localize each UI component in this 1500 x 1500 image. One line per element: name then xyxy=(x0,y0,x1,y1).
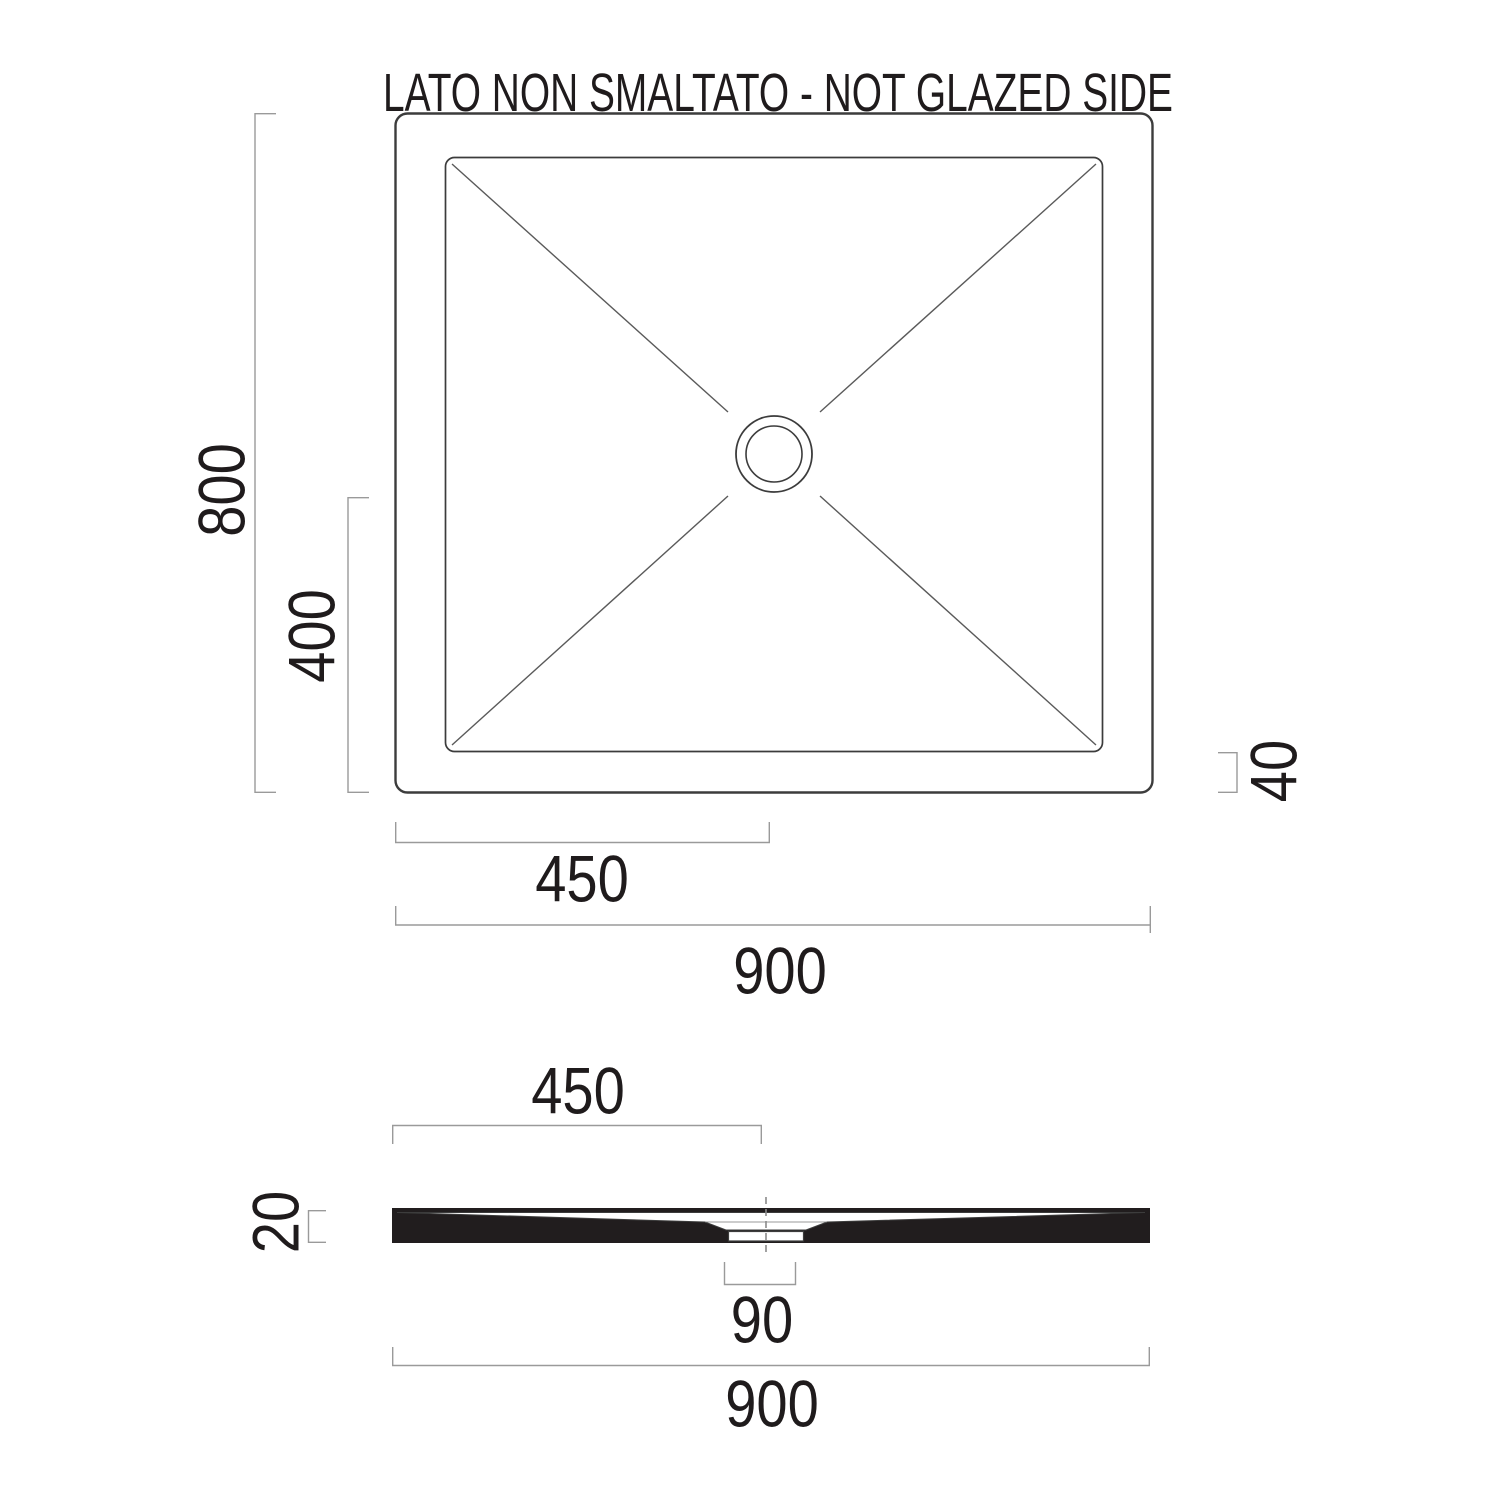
dim-90-label: 90 xyxy=(731,1283,793,1356)
dim-90: 90 xyxy=(725,1262,796,1357)
dim-900-section-label: 900 xyxy=(725,1367,819,1440)
slope-diagonal-top-left xyxy=(452,164,728,412)
dim-900-section: 900 xyxy=(392,1347,1150,1441)
dim-40: 40 xyxy=(1218,740,1311,802)
dim-20-label: 20 xyxy=(239,1191,312,1253)
dim-800: 800 xyxy=(185,113,276,793)
dim-400: 400 xyxy=(275,497,369,793)
dim-900-top-view: 900 xyxy=(395,906,1151,1008)
top-view xyxy=(396,114,1153,793)
drain-inner-circle xyxy=(746,426,802,482)
dim-40-label: 40 xyxy=(1237,740,1310,802)
dim-450-section-label: 450 xyxy=(531,1054,625,1127)
shower-tray-technical-drawing: LATO NON SMALTATO - NOT GLAZED SIDE 800 … xyxy=(0,0,1500,1500)
dim-450-top-view: 450 xyxy=(395,822,770,916)
dim-20: 20 xyxy=(239,1191,326,1253)
dim-450-top-view-label: 450 xyxy=(535,842,629,915)
drain-outer-circle xyxy=(736,416,812,492)
dim-400-label: 400 xyxy=(275,589,348,683)
dim-450-section: 450 xyxy=(392,1054,762,1144)
top-view-dimensions: 800 400 40 450 900 xyxy=(185,113,1310,1008)
section-view xyxy=(392,1197,1150,1256)
section-view-dimensions: 450 20 90 900 xyxy=(239,1054,1150,1440)
slope-diagonal-bottom-right xyxy=(820,496,1096,745)
dim-800-label: 800 xyxy=(185,443,258,537)
drawing-canvas: LATO NON SMALTATO - NOT GLAZED SIDE 800 … xyxy=(0,0,1500,1500)
slope-diagonal-top-right xyxy=(820,164,1096,412)
dim-900-top-view-label: 900 xyxy=(733,934,827,1007)
slope-diagonal-bottom-left xyxy=(452,496,728,745)
